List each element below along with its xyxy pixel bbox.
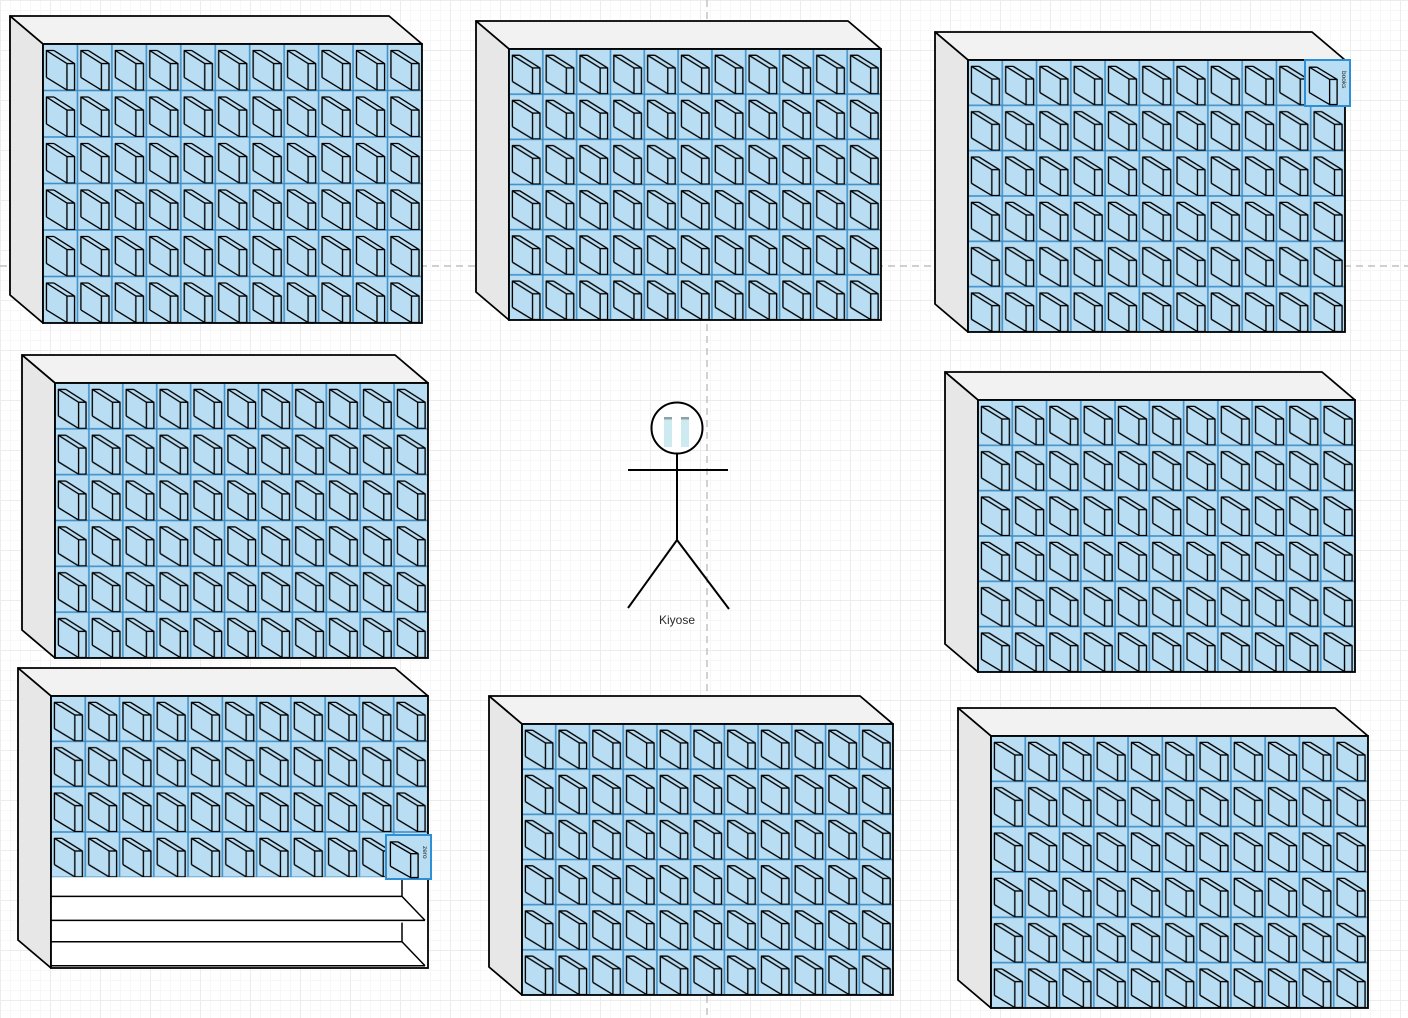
shelf-side-face: [18, 668, 51, 968]
bookcase-middle-right[interactable]: [945, 372, 1355, 672]
shelf-top-face: [489, 696, 893, 724]
diagram-svg: bookszeroKiyose: [0, 0, 1408, 1018]
shelf-top-face: [476, 21, 881, 49]
head-book-bar: [681, 417, 689, 447]
shelf-top-face: [935, 32, 1345, 60]
book-spine-title: zero: [421, 846, 428, 859]
bookcase-bottom-center[interactable]: [489, 696, 893, 995]
shelf-side-face: [945, 372, 978, 672]
bookcase-bottom-right[interactable]: [958, 708, 1368, 1008]
person-label: Kiyose: [659, 613, 695, 627]
person-leg: [677, 540, 729, 609]
book-spine-title: books: [1340, 71, 1347, 89]
shelf-side-face: [935, 32, 968, 332]
shelf-side-face: [489, 696, 522, 995]
head-book-bar: [664, 417, 672, 447]
shelf-top-face: [958, 708, 1368, 736]
bookcase-top-right[interactable]: [935, 32, 1345, 332]
shelf-top-face: [18, 668, 428, 696]
person-head: [652, 403, 703, 454]
book-rows: [51, 696, 428, 877]
book-rows: [522, 724, 893, 995]
book-rows: [55, 383, 428, 658]
shelf-side-face: [10, 16, 43, 323]
shelf-top-face: [945, 372, 1355, 400]
bookcase-bottom-left[interactable]: [18, 668, 428, 968]
head-book-bar-cap: [681, 417, 689, 420]
labeled-book-books[interactable]: books: [1305, 60, 1350, 106]
person-kiyose[interactable]: Kiyose: [628, 403, 729, 628]
shelf-side-face: [22, 355, 55, 658]
head-book-bar-cap: [664, 417, 672, 420]
shelf-side-face: [958, 708, 991, 1008]
book-rows: [968, 60, 1345, 332]
bookcase-top-center[interactable]: [476, 21, 881, 320]
bookcase-top-left[interactable]: [10, 16, 422, 323]
drawio-canvas: bookszeroKiyose: [0, 0, 1408, 1018]
book-rows: [991, 736, 1368, 1008]
book-rows: [43, 44, 422, 323]
book-rows: [509, 49, 881, 320]
bookcase-middle-left[interactable]: [22, 355, 428, 658]
empty-shelf-area: [51, 877, 428, 968]
labeled-book-zero[interactable]: zero: [386, 835, 431, 879]
shelf-side-face: [476, 21, 509, 320]
person-leg: [628, 540, 677, 608]
book-rows: [978, 400, 1355, 672]
shelf-top-face: [22, 355, 428, 383]
shelf-top-face: [10, 16, 422, 44]
